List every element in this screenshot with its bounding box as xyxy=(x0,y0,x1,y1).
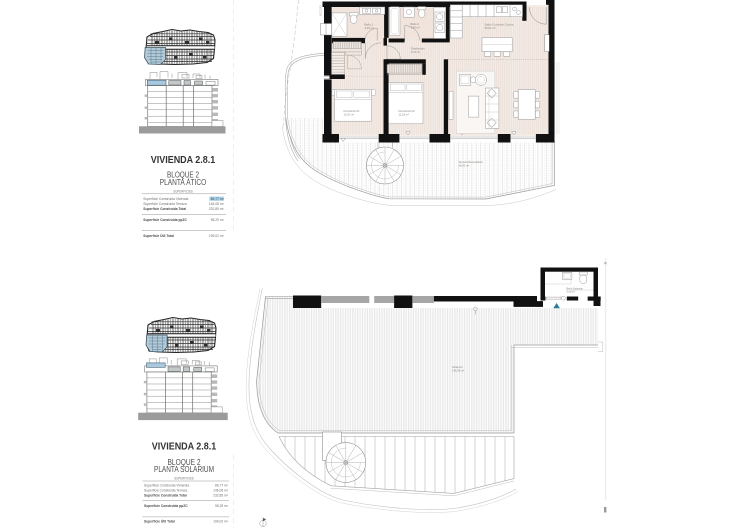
svg-text:55,01 m²: 55,01 m² xyxy=(485,26,496,30)
svg-text:232,85 m²: 232,85 m² xyxy=(213,494,229,498)
svg-text:Superficie Construida Total: Superficie Construida Total xyxy=(143,207,186,211)
svg-text:SUPERFICIES: SUPERFICIES xyxy=(173,189,193,193)
svg-text:4,30 m²: 4,30 m² xyxy=(365,26,374,30)
svg-text:Superficie Útil Total: Superficie Útil Total xyxy=(144,519,175,524)
svg-text:ACCESO: ACCESO xyxy=(320,5,323,16)
svg-text:Superficie Construida Vivienda: Superficie Construida Vivienda xyxy=(144,484,189,488)
svg-text:Superficie Construida ppZC: Superficie Construida ppZC xyxy=(143,218,187,222)
svg-text:199,02 m²: 199,02 m² xyxy=(209,234,225,238)
svg-text:Superficie Construida Vivienda: Superficie Construida Vivienda xyxy=(143,197,188,201)
svg-text:VIVIENDA 2.8.1: VIVIENDA 2.8.1 xyxy=(151,155,216,166)
svg-text:PLANTA SOLARIUM: PLANTA SOLARIUM xyxy=(154,465,214,474)
svg-text:146,08 m²: 146,08 m² xyxy=(213,489,229,493)
svg-text:232,85 m²: 232,85 m² xyxy=(209,207,225,211)
svg-text:98,29 m²: 98,29 m² xyxy=(211,218,225,222)
svg-text:SUPERFICIES: SUPERFICIES xyxy=(174,477,194,481)
svg-text:11,18 m²: 11,18 m² xyxy=(399,112,410,116)
svg-text:146,08 m²: 146,08 m² xyxy=(209,202,225,206)
svg-text:Superficie Construida ppZC: Superficie Construida ppZC xyxy=(144,504,188,508)
svg-text:Superficie Construida Terraza: Superficie Construida Terraza xyxy=(143,202,187,206)
svg-text:Superficie Construida Terraza: Superficie Construida Terraza xyxy=(144,489,188,493)
svg-text:199,02 m²: 199,02 m² xyxy=(213,520,229,524)
svg-text:PLANTA ÁTICO: PLANTA ÁTICO xyxy=(160,178,207,187)
svg-text:5,70 m²: 5,70 m² xyxy=(411,50,420,54)
svg-text:146,08 m²: 146,08 m² xyxy=(452,368,464,372)
svg-text:3,80 m²: 3,80 m² xyxy=(411,26,420,30)
svg-text:86,77 m²: 86,77 m² xyxy=(211,197,225,201)
svg-text:36,81 m²: 36,81 m² xyxy=(459,163,470,167)
svg-text:5,08 m²: 5,08 m² xyxy=(567,291,576,294)
svg-text:VIVIENDA 2.8.1: VIVIENDA 2.8.1 xyxy=(152,441,217,452)
svg-text:Superficie Útil Total: Superficie Útil Total xyxy=(143,233,174,238)
svg-text:Superficie Construida Total: Superficie Construida Total xyxy=(144,494,187,498)
svg-text:86,77 m²: 86,77 m² xyxy=(215,484,229,488)
svg-text:12,91 m²: 12,91 m² xyxy=(344,112,355,116)
svg-text:98,29 m²: 98,29 m² xyxy=(215,504,229,508)
